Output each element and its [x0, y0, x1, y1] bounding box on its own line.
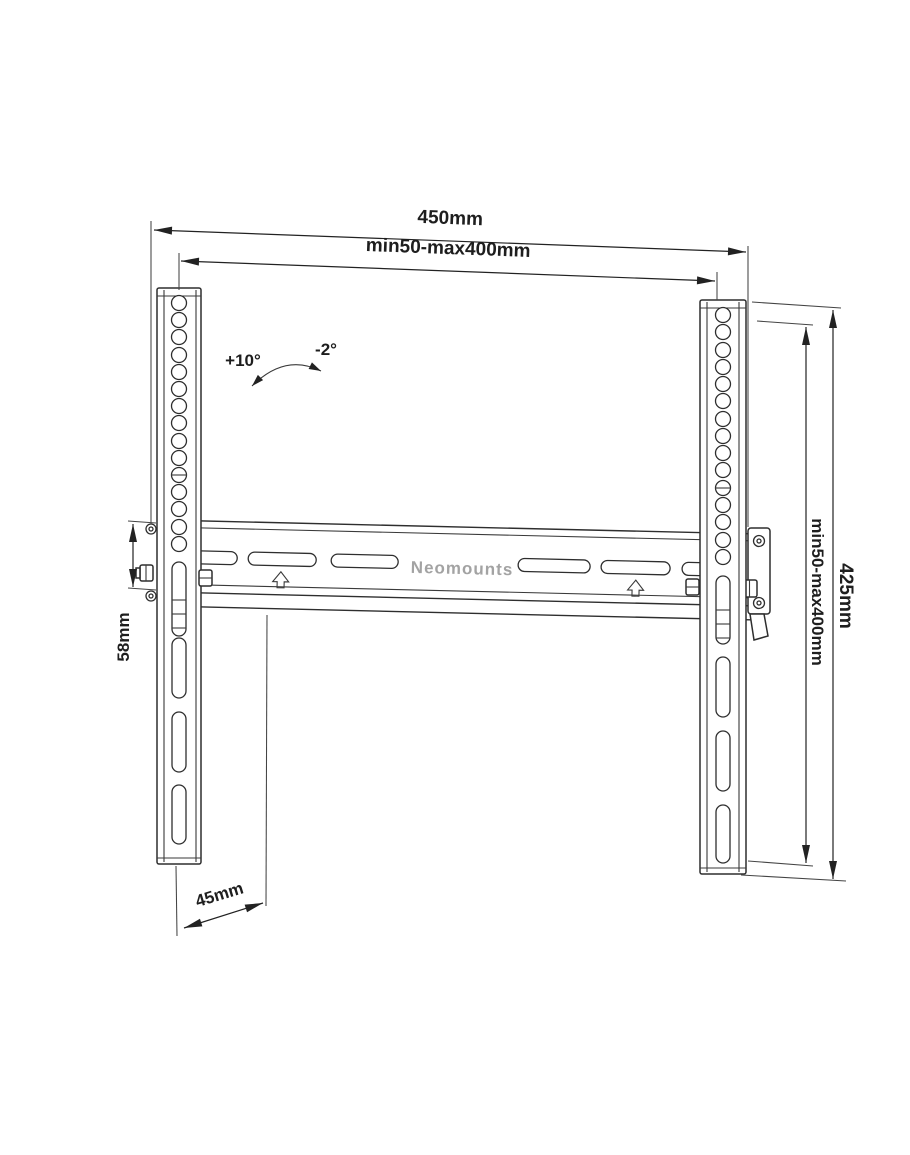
dim-outer-height-label: 425mm: [835, 563, 856, 629]
drawing-canvas: Neomounts: [0, 0, 910, 1155]
dim-vesa-width-label: min50-max400mm: [365, 235, 530, 262]
tilt-plus-label: +10°: [225, 351, 261, 370]
dim-depth-label: 45mm: [193, 878, 246, 911]
right-bracket-holes: [715, 308, 731, 565]
dim-outer-width-label: 450mm: [417, 207, 483, 230]
wall-mount-technical-drawing: Neomounts: [0, 0, 910, 1155]
up-arrow-icon: [273, 572, 289, 588]
dimension-vesa-width: min50-max400mm: [179, 235, 717, 300]
dim-vesa-height-label: min50-max400mm: [808, 518, 827, 665]
dim-rail-height-label: 58mm: [114, 612, 133, 661]
tilt-minus-label: -2°: [315, 340, 337, 359]
right-bracket: [686, 300, 746, 874]
wall-rail: Neomounts: [161, 520, 757, 620]
tilt-annotation: +10° -2°: [225, 340, 337, 386]
left-bracket-slots: [172, 638, 186, 844]
clamp-slot: [172, 562, 186, 636]
tilt-arc-arrow: [252, 365, 321, 386]
up-arrow-icon: [627, 580, 643, 596]
brand-label: Neomounts: [411, 558, 514, 579]
left-bracket-holes: [171, 296, 187, 552]
right-flange-hardware: [686, 579, 699, 595]
left-bracket: [136, 288, 212, 864]
right-bracket-slots: [716, 657, 730, 863]
